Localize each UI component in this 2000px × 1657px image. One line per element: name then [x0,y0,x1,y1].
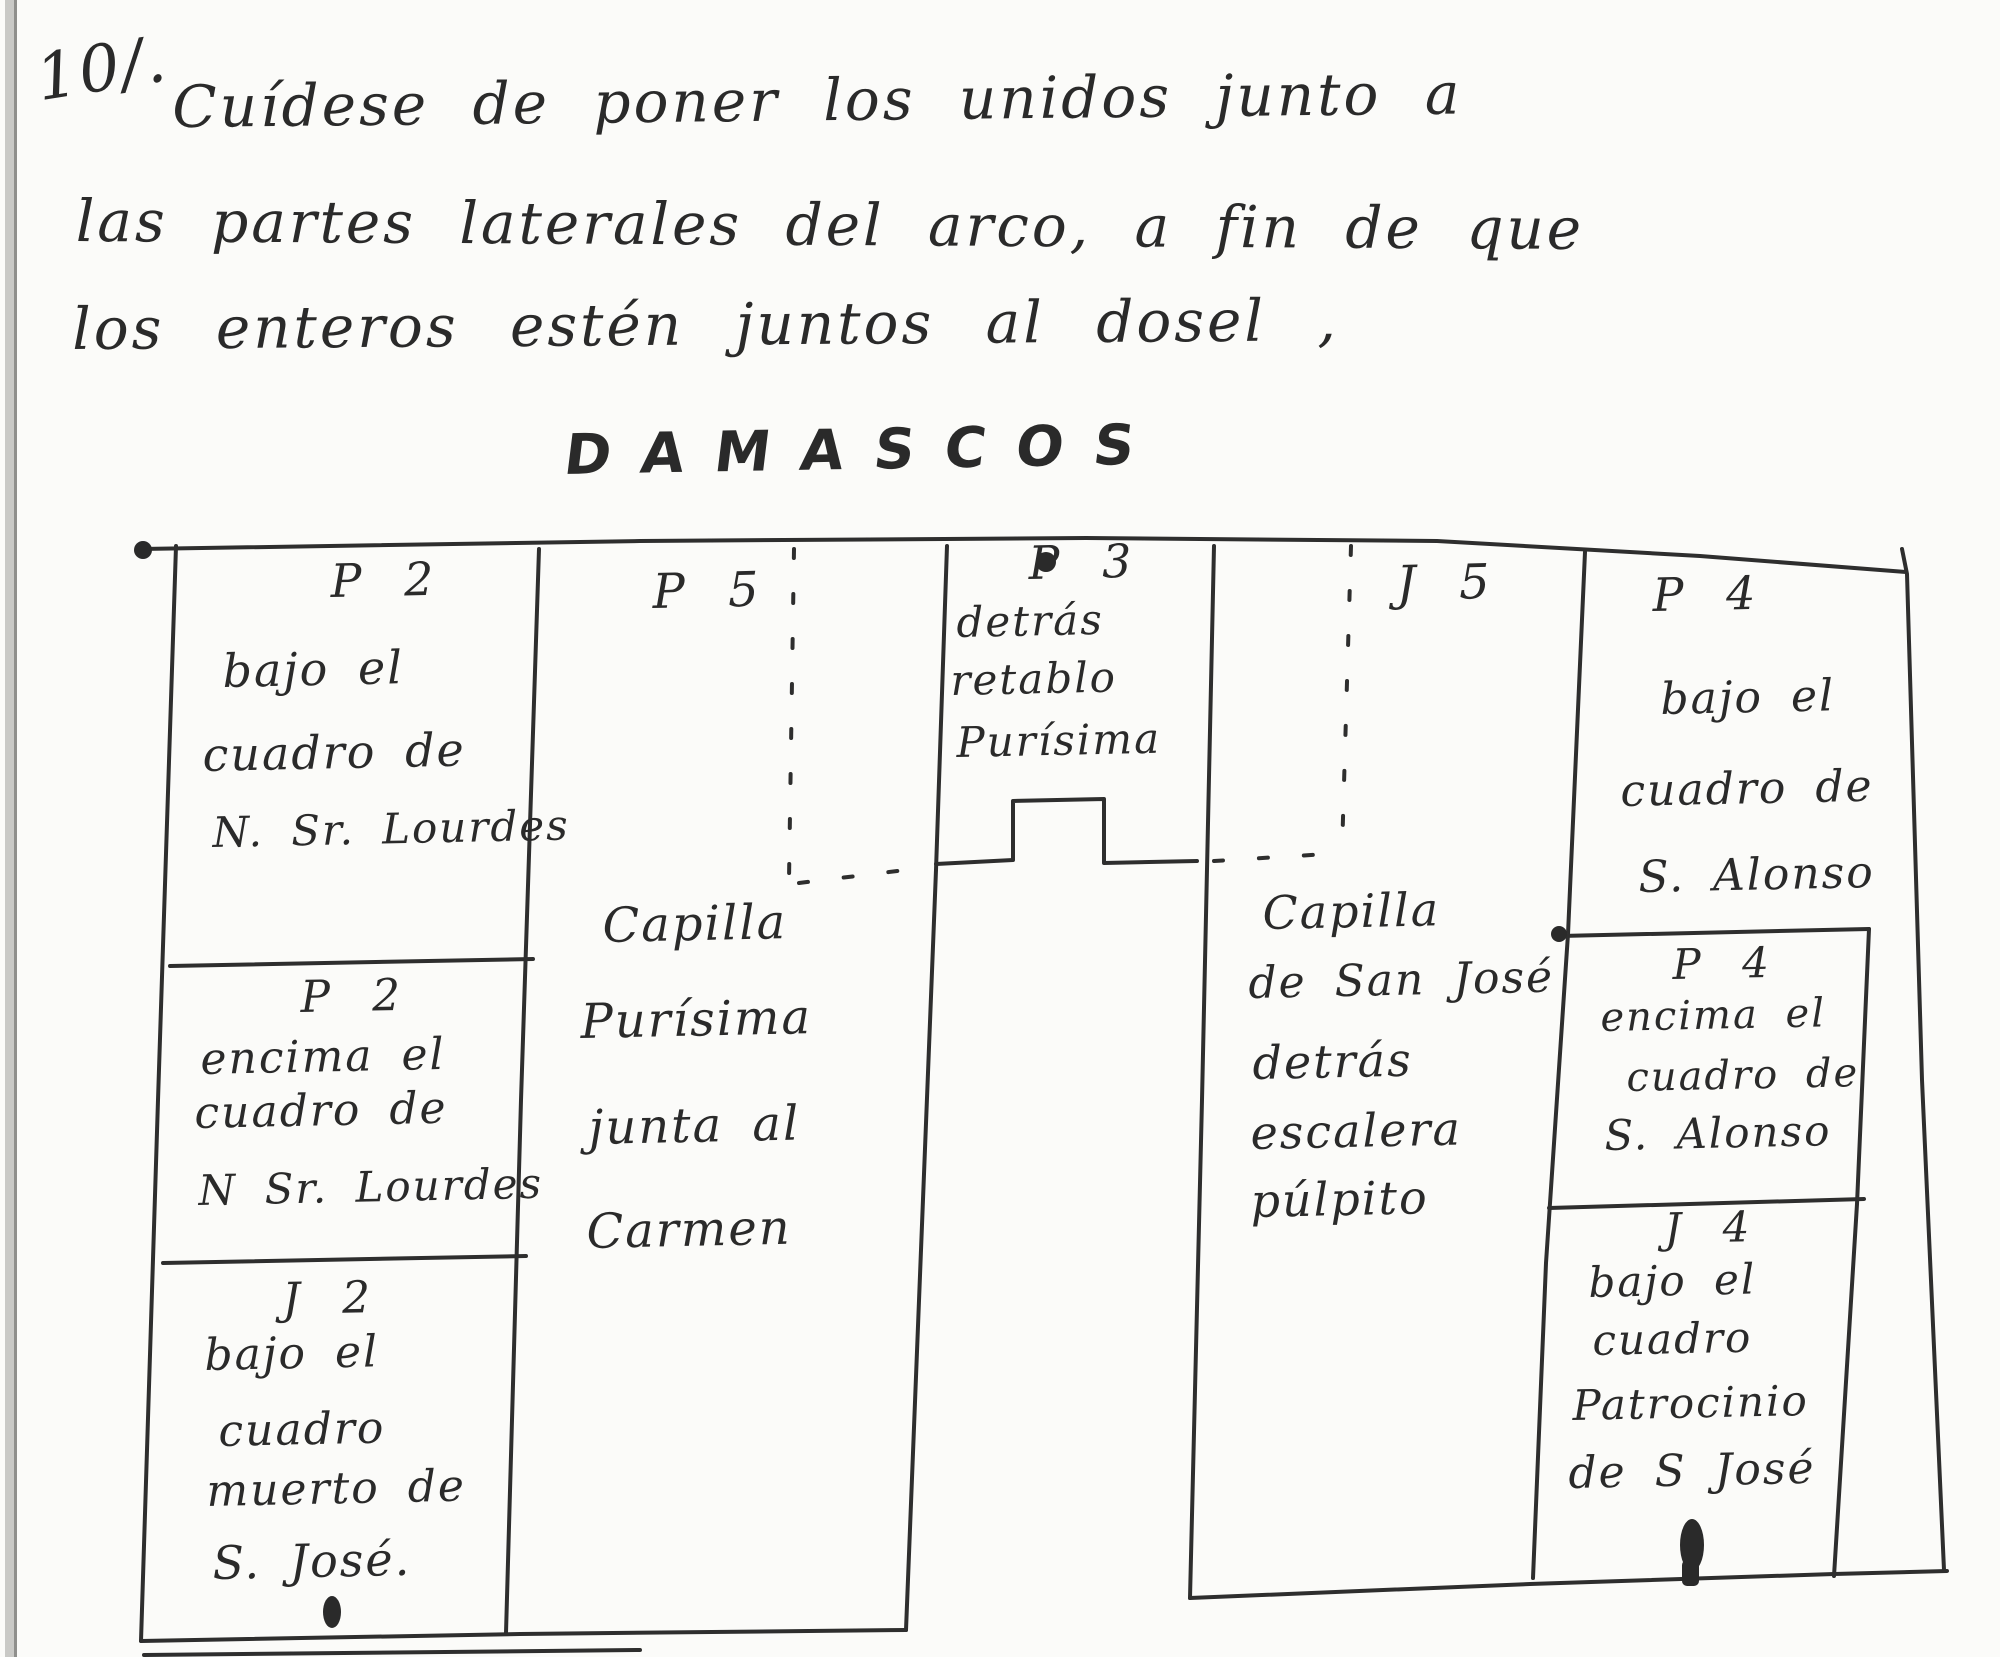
box-line: S. Alonso [1604,1110,1832,1157]
box-line: cuadro de [194,1087,448,1136]
chapel-line: Capilla [602,898,788,950]
box-line: encima el [1600,993,1826,1038]
chapel-line: Capilla [1262,886,1441,936]
right-column-right-wall [1834,929,1869,1576]
box-line: bajo el [1588,1258,1757,1304]
left-bottom-edge-2 [144,1650,640,1655]
right-divider-1 [1560,929,1869,936]
box-line: S. José. [212,1536,412,1586]
box-code: J 4 [1664,1206,1764,1250]
chapel-line: junta al [588,1100,801,1152]
box-line: detrás [956,599,1104,644]
center-box-notched-bottom [936,799,1197,864]
note-line-2: las partes laterales del arco, a fin de … [76,192,1585,258]
left-column-right-wall [506,549,539,1633]
nave-right-wall [1190,546,1214,1598]
box-line: encima el [200,1033,446,1082]
left-wall [141,546,176,1641]
chapel-line: escalera [1250,1106,1462,1156]
box-line: N Sr. Lourdes [198,1163,543,1212]
corner-ink-dot [134,541,152,559]
box-line: cuadro [1592,1317,1753,1362]
nave-left-wall [906,546,947,1630]
box-line: bajo el [1660,674,1836,722]
box-line: S. Alonso [1638,851,1875,900]
outer-right-wall [1902,549,1944,1570]
note-line-1: Cuídese de poner los unidos junto a [172,64,1463,136]
left-divider-1 [170,959,533,966]
box-code: P 4 [1672,942,1783,986]
box-code: J 2 [282,1276,385,1322]
chapel-code: P 5 [652,565,773,616]
note-line-3: los enteros estén juntos al dosel , [72,291,1339,358]
box-code: P 2 [300,974,414,1020]
box-line: Patrocinio [1572,1380,1809,1427]
box-line: muerto de [206,1465,466,1514]
box-line: N. Sr. Lourdes [212,805,570,854]
box-line: bajo el [222,644,404,694]
left-divider-2 [163,1256,526,1263]
left-bottom-edge [141,1630,906,1641]
junction-ink-dot [1551,926,1567,942]
chapel-code: J 5 [1396,558,1504,608]
chapel-line: de San José [1248,956,1554,1006]
scan-edge [5,0,17,1657]
chapel-line: detrás [1252,1037,1413,1086]
box-line: retablo [950,657,1117,702]
ink-blot-j2 [323,1596,341,1628]
box-line: bajo el [204,1330,380,1378]
box-line: cuadro de [1626,1053,1860,1098]
dashed-arch-left-vertical [789,549,794,880]
dashed-arch-right-horizontal [1214,853,1344,861]
box-line: cuadro [218,1407,386,1454]
dashed-arch-left-horizontal [799,867,930,883]
box-code: P 4 [1652,570,1770,618]
box-code: P 2 [330,556,448,604]
chapel-line: Carmen [586,1204,792,1256]
box-line: cuadro de [1620,765,1874,814]
chapel-line: Purísima [580,993,813,1046]
box-line: Purísima [956,718,1162,764]
chapel-line: púlpito [1250,1174,1429,1224]
box-line: de S José [1568,1447,1816,1496]
dashed-arch-right-vertical [1342,546,1351,852]
box-line: cuadro de [202,726,466,778]
note-number: 10/. [32,27,172,111]
scanned-handwritten-page: 10/. Cuídese de poner los unidos junto a… [0,0,2000,1657]
box-code: P 3 [1028,538,1146,586]
ink-blot-j4-drip [1682,1560,1699,1586]
right-bottom-edge [1190,1571,1947,1598]
plan-title: DAMASCOS [561,418,1168,484]
